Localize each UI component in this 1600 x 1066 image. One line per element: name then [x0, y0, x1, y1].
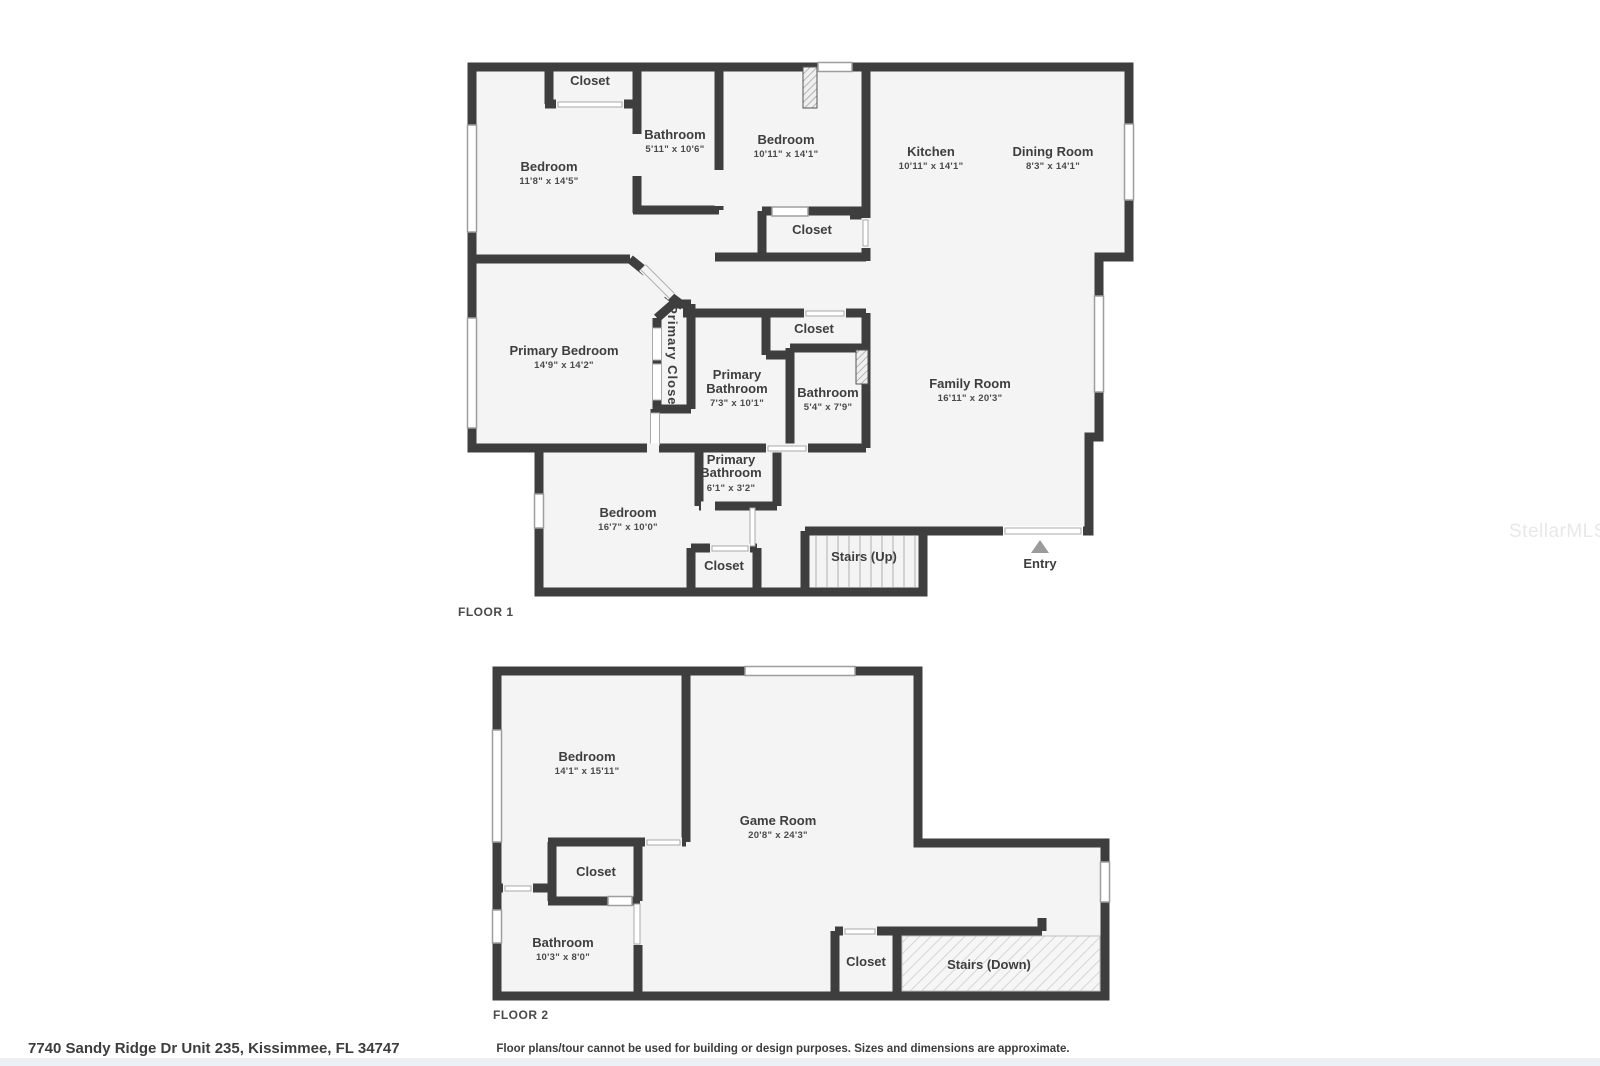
room-label-bathroom-2: Bathroom [797, 385, 858, 400]
room-label-family-room: Family Room [929, 376, 1011, 391]
door-leaf-family-room [768, 446, 806, 451]
room-label-primary-closet: Primary Closet [665, 305, 680, 411]
room-dims-primary-bedroom: 14'9" x 14'2" [534, 360, 594, 371]
window-bathroom-f2 [493, 910, 502, 943]
floor-1-plan: Closet Bedroom 11'8" x 14'5" Bathroom 5'… [458, 63, 1134, 620]
door-leaf-bedroom-3-closet [750, 508, 755, 546]
door-gap-primary-bathroom-2 [701, 502, 715, 511]
door-leaf-closet-bedroom-3 [712, 546, 748, 551]
room-label-primary-bathroom-line2: Bathroom [706, 381, 767, 396]
room-label-dining-room: Dining Room [1013, 144, 1094, 159]
door-leaf-closet-top-left [558, 102, 622, 107]
door-hatch-bedroom-2 [803, 67, 817, 108]
window-primary-bedroom [468, 318, 477, 428]
address-text: 7740 Sandy Ridge Dr Unit 235, Kissimmee,… [28, 1040, 400, 1057]
window-closet-bedroom-2 [772, 207, 808, 216]
room-dims-bedroom-1: 11'8" x 14'5" [519, 176, 578, 187]
door-leaf-bathroom-f2 [505, 886, 531, 891]
room-label-bedroom-2: Bedroom [757, 132, 814, 147]
window-bedroom-f2 [493, 730, 502, 842]
window-game-room-right [1101, 862, 1110, 902]
room-label-closet-hall-f2: Closet [846, 954, 886, 969]
room-dims-bathroom-2: 5'4" x 7'9" [804, 402, 853, 413]
entry-threshold [1005, 528, 1081, 534]
louver-door-primary-closet-1 [653, 328, 662, 360]
window-bedroom-1 [468, 125, 477, 232]
door-gap-bathroom-1-left [633, 134, 642, 176]
window-dining-room [1125, 124, 1134, 200]
footer-strip [0, 1058, 1600, 1066]
room-label-stairs-down: Stairs (Down) [947, 957, 1031, 972]
room-label-bathroom-1: Bathroom [644, 127, 705, 142]
room-dims-bedroom-f2: 14'1" x 15'11" [555, 766, 620, 777]
door-hatch-bathroom-2 [856, 350, 868, 384]
room-dims-kitchen: 10'11" x 14'1" [899, 161, 964, 172]
door-leaf-closet-hall-f2 [845, 929, 875, 934]
room-dims-primary-bathroom-2: 6'1" x 3'2" [707, 483, 756, 494]
door-gap-bathroom-1-right [715, 170, 724, 206]
room-dims-family-room: 16'11" x 20'3" [938, 393, 1003, 404]
window-family-room [1095, 296, 1104, 392]
door-leaf-primary-closet-bottom [651, 413, 660, 445]
room-dims-game-room: 20'8" x 24'3" [748, 830, 808, 841]
room-dims-bathroom-f2: 10'3" x 8'0" [536, 952, 590, 963]
room-label-game-room: Game Room [740, 813, 817, 828]
window-bedroom-3 [535, 494, 544, 528]
window-closet-bedroom-f2 [608, 897, 632, 906]
room-label-primary-bathroom-line1: Primary [713, 367, 762, 382]
room-label-primary-bedroom: Primary Bedroom [509, 343, 618, 358]
room-dims-bathroom-1: 5'11" x 10'6" [645, 144, 704, 155]
floor-1-label: FLOOR 1 [458, 605, 514, 619]
door-leaf-closet-hall [806, 311, 844, 316]
room-label-closet-bedroom-f2: Closet [576, 864, 616, 879]
room-label-closet-hall: Closet [794, 321, 834, 336]
door-gap-bedroom-3 [647, 444, 659, 453]
room-dims-bedroom-2: 10'11" x 14'1" [754, 149, 819, 160]
floor-2-label: FLOOR 2 [493, 1008, 549, 1022]
room-label-bathroom-f2: Bathroom [532, 935, 593, 950]
room-label-closet-bedroom-2: Closet [792, 222, 832, 237]
room-label-entry: Entry [1023, 556, 1057, 571]
door-leaf-bedroom-f2 [647, 840, 680, 845]
room-label-primary-bathroom-2-line2: Bathroom [700, 465, 761, 480]
window-bedroom-2 [818, 63, 852, 72]
room-label-bedroom-3: Bedroom [599, 505, 656, 520]
room-label-kitchen: Kitchen [907, 144, 955, 159]
room-label-closet-top-left: Closet [570, 73, 610, 88]
door-leaf-kitchen [863, 220, 868, 246]
room-label-bedroom-f2: Bedroom [558, 749, 615, 764]
louver-door-primary-closet-2 [653, 364, 662, 400]
window-game-room-top [745, 667, 855, 676]
room-dims-bedroom-3: 16'7" x 10'0" [598, 522, 658, 533]
floor-plan-image: Closet Bedroom 11'8" x 14'5" Bathroom 5'… [0, 0, 1600, 1066]
room-label-closet-bedroom-3: Closet [704, 558, 744, 573]
watermark: StellarMLS [1509, 521, 1600, 542]
disclaimer-text: Floor plans/tour cannot be used for buil… [496, 1043, 1069, 1055]
room-label-bedroom-1: Bedroom [520, 159, 577, 174]
room-label-stairs-up: Stairs (Up) [831, 549, 897, 564]
room-dims-primary-bathroom: 7'3" x 10'1" [710, 398, 764, 409]
door-leaf-bathroom-f2-right [634, 904, 640, 944]
room-dims-dining-room: 8'3" x 14'1" [1026, 161, 1080, 172]
